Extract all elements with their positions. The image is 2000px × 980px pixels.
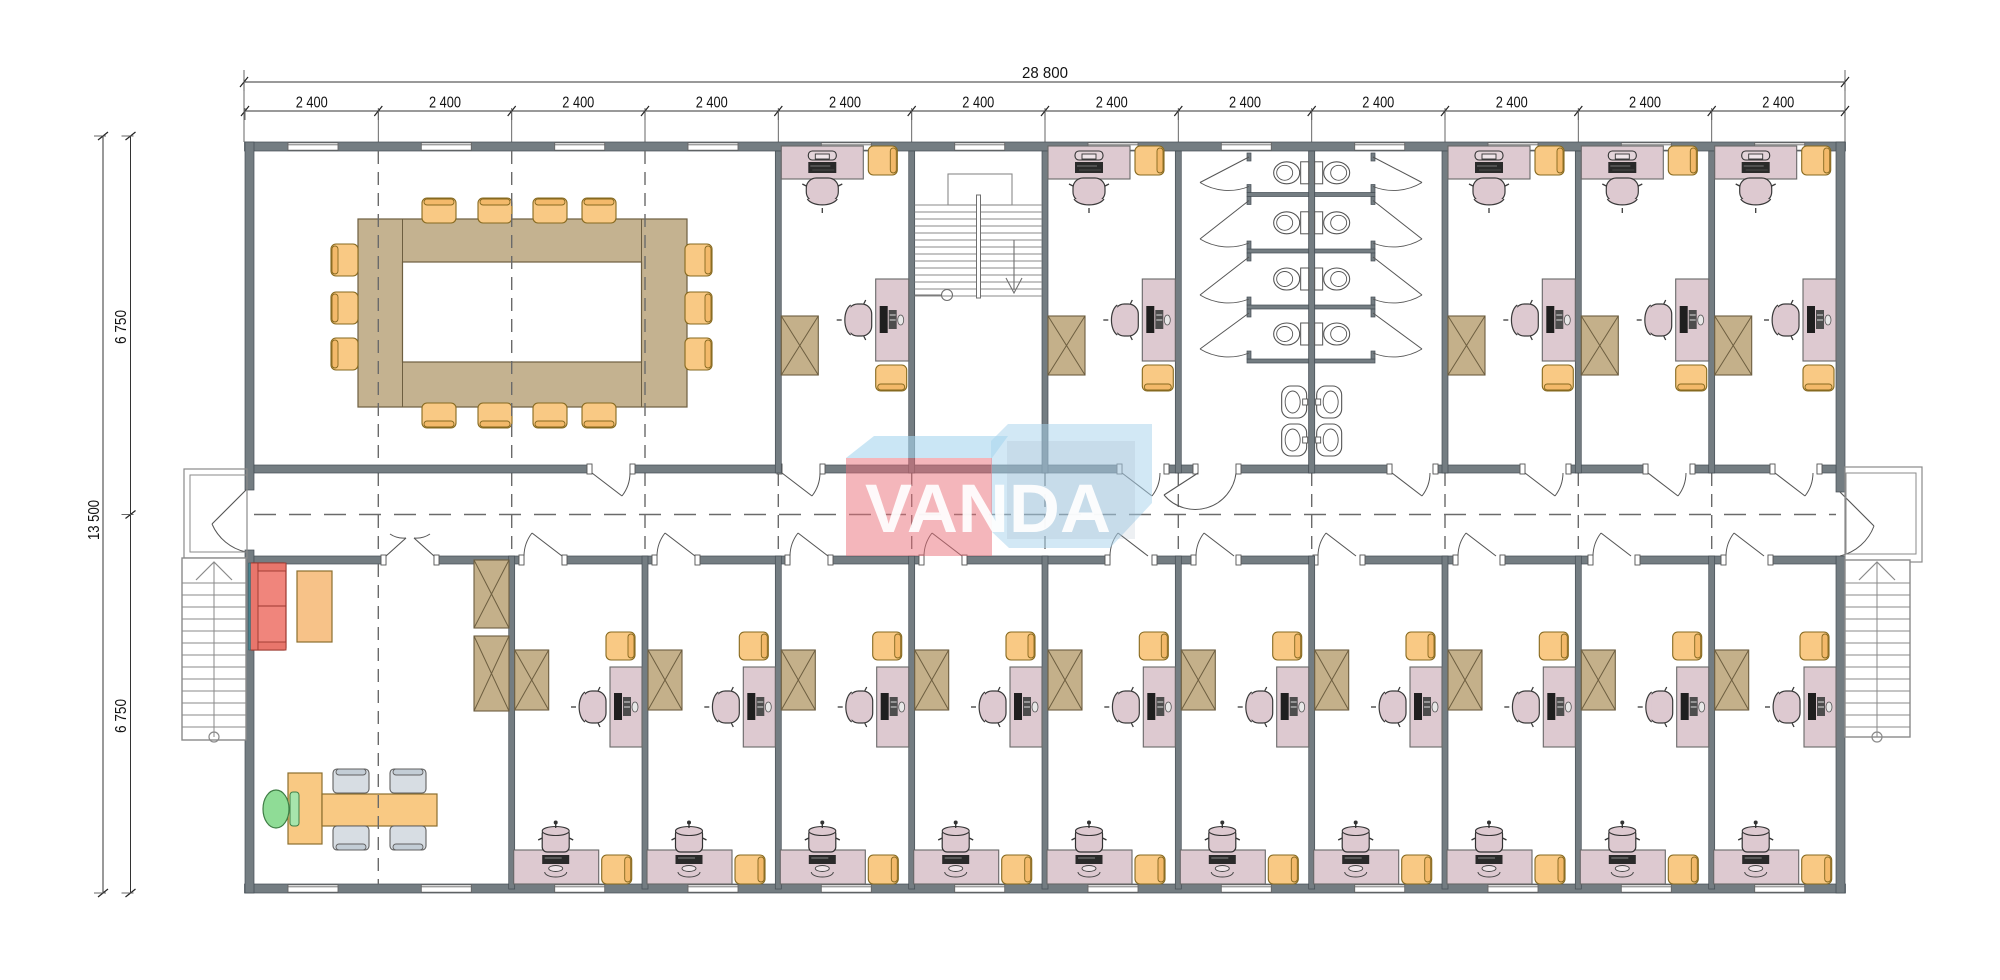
- svg-text:2 400: 2 400: [829, 95, 861, 112]
- svg-text:6 750: 6 750: [113, 699, 130, 733]
- svg-text:2 400: 2 400: [1096, 95, 1128, 112]
- svg-text:13 500: 13 500: [86, 500, 103, 540]
- svg-text:28 800: 28 800: [1022, 65, 1068, 82]
- svg-text:2 400: 2 400: [1229, 95, 1261, 112]
- svg-text:2 400: 2 400: [429, 95, 461, 112]
- svg-text:VANDA: VANDA: [865, 470, 1111, 547]
- svg-text:2 400: 2 400: [1762, 95, 1794, 112]
- svg-text:2 400: 2 400: [962, 95, 994, 112]
- svg-text:2 400: 2 400: [562, 95, 594, 112]
- svg-text:2 400: 2 400: [1362, 95, 1394, 112]
- svg-text:2 400: 2 400: [296, 95, 328, 112]
- svg-text:6 750: 6 750: [113, 310, 130, 344]
- svg-text:2 400: 2 400: [696, 95, 728, 112]
- svg-text:2 400: 2 400: [1496, 95, 1528, 112]
- svg-text:2 400: 2 400: [1629, 95, 1661, 112]
